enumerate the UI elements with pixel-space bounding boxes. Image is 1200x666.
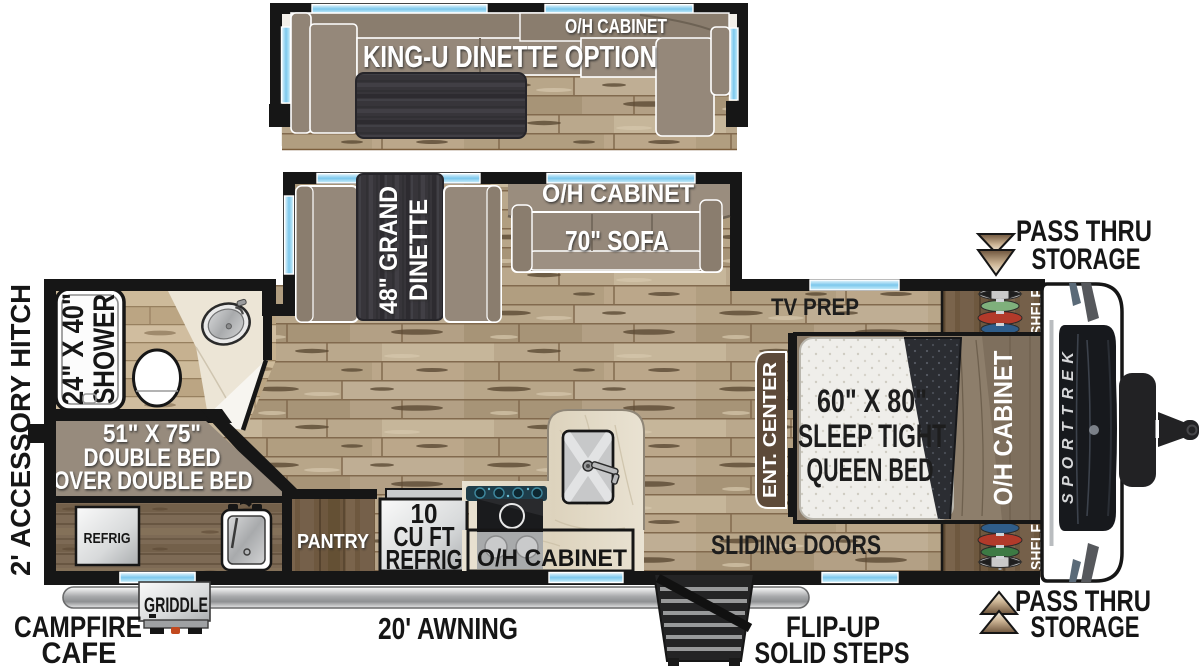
svg-text:QUEEN BED: QUEEN BED: [807, 452, 934, 488]
svg-text:O/H CABINET: O/H CABINET: [988, 350, 1018, 505]
svg-text:DINETTE: DINETTE: [405, 199, 433, 301]
svg-text:SHOWER: SHOWER: [88, 294, 121, 404]
svg-text:20' AWNING: 20' AWNING: [378, 611, 518, 646]
svg-text:2' ACCESSORY HITCH: 2' ACCESSORY HITCH: [5, 284, 36, 576]
svg-text:48" GRAND: 48" GRAND: [375, 186, 403, 314]
svg-text:O/H CABINET: O/H CABINET: [542, 180, 694, 208]
svg-text:SLIDING DOORS: SLIDING DOORS: [711, 530, 881, 560]
svg-text:KING-U DINETTE OPTION: KING-U DINETTE OPTION: [363, 39, 657, 74]
svg-text:60" X 80": 60" X 80": [817, 383, 927, 419]
svg-text:OVER DOUBLE BED: OVER DOUBLE BED: [54, 467, 253, 495]
svg-text:24" X 40": 24" X 40": [57, 293, 90, 405]
svg-text:STORAGE: STORAGE: [1032, 243, 1141, 276]
svg-text:SPORTTREK: SPORTTREK: [1060, 351, 1077, 504]
svg-text:SOLID STEPS: SOLID STEPS: [755, 637, 910, 666]
svg-text:SLEEP TIGHT: SLEEP TIGHT: [798, 418, 946, 454]
svg-text:O/H CABINET: O/H CABINET: [565, 16, 667, 38]
svg-text:PANTRY: PANTRY: [297, 531, 370, 553]
svg-text:CAFE: CAFE: [42, 637, 117, 666]
svg-text:GRIDDLE: GRIDDLE: [144, 594, 208, 617]
svg-text:REFRIG: REFRIG: [84, 530, 131, 547]
svg-text:ENT. CENTER: ENT. CENTER: [760, 362, 780, 498]
svg-text:70" SOFA: 70" SOFA: [565, 225, 669, 256]
svg-text:O/H CABINET: O/H CABINET: [477, 545, 627, 572]
svg-text:REFRIG: REFRIG: [386, 544, 463, 575]
svg-text:STORAGE: STORAGE: [1031, 611, 1140, 644]
svg-text:TV PREP: TV PREP: [771, 294, 859, 321]
